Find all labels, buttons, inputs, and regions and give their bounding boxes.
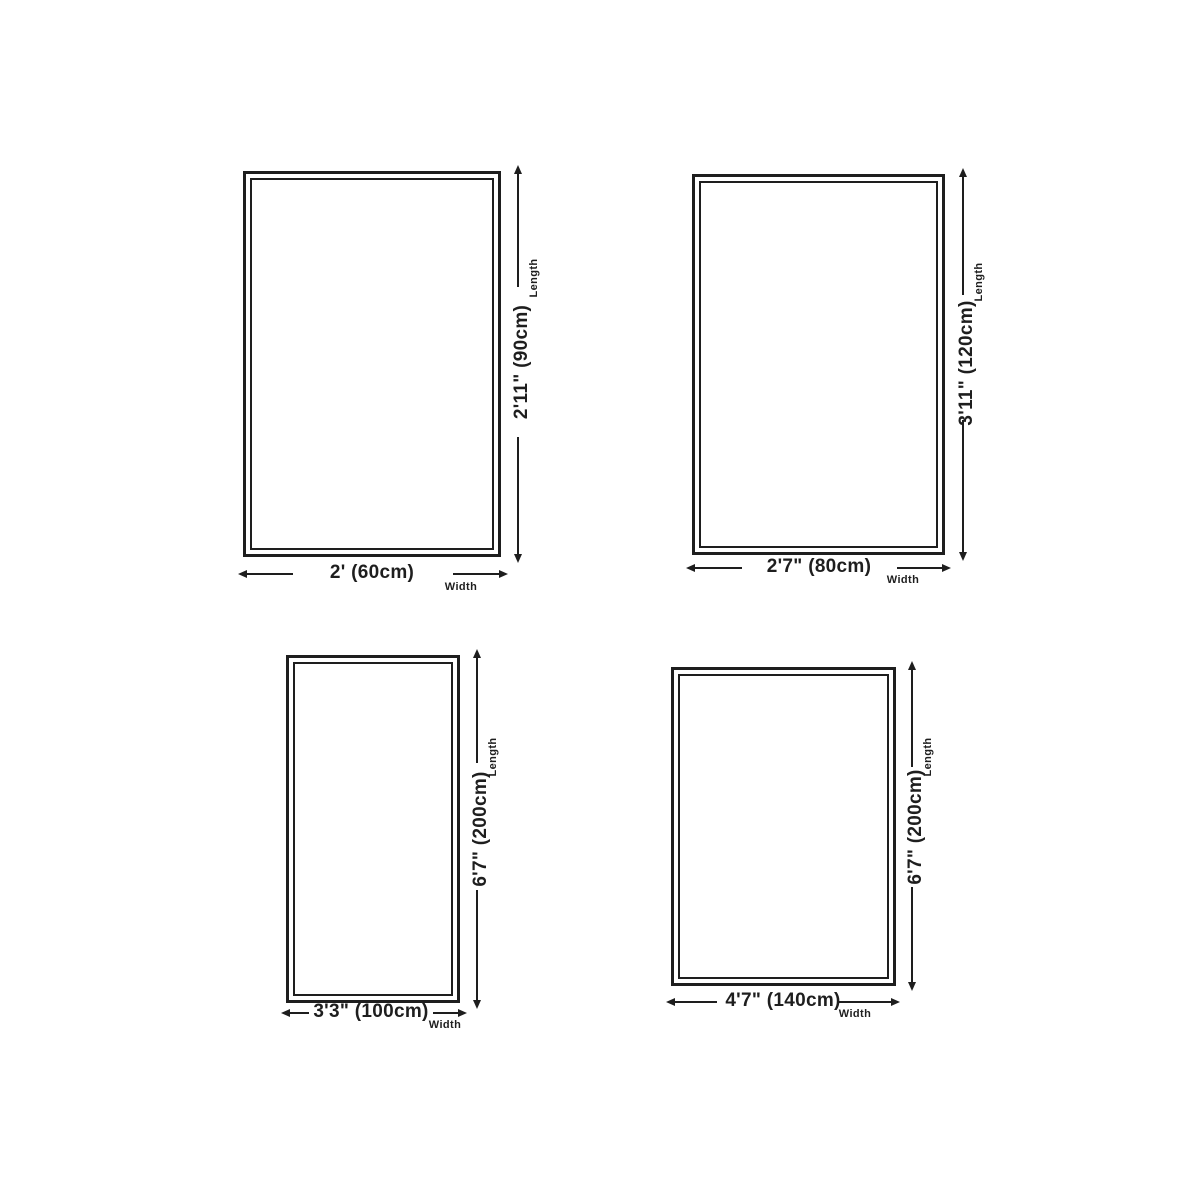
width-arrow-right-icon: [453, 573, 499, 575]
rug-outline: [692, 174, 945, 555]
rug-outline: [286, 655, 460, 1003]
length-value: 2'11" (90cm): [511, 305, 533, 419]
length-arrow-up-icon: [911, 670, 913, 767]
length-caption: Length: [973, 262, 985, 301]
width-arrow-left-icon: [290, 1012, 309, 1014]
width-caption: Width: [839, 1008, 871, 1020]
length-caption: Length: [528, 258, 540, 297]
width-value: 2' (60cm): [330, 562, 414, 584]
width-caption: Width: [887, 574, 919, 586]
width-value: 4'7" (140cm): [725, 990, 840, 1012]
width-value: 3'3" (100cm): [313, 1001, 428, 1023]
length-arrow-up-icon: [476, 658, 478, 763]
width-caption: Width: [445, 581, 477, 593]
length-value: 6'7" (200cm): [905, 769, 927, 884]
length-arrow-down-icon: [962, 420, 964, 552]
rug-size-chart: 2'11" (90cm) Length 2' (60cm) Width 3'11…: [0, 0, 1200, 1200]
rug-outline: [671, 667, 896, 986]
width-arrow-left-icon: [247, 573, 293, 575]
rug-inner-outline: [678, 674, 889, 979]
length-arrow-up-icon: [517, 174, 519, 287]
length-caption: Length: [922, 737, 934, 776]
length-value: 3'11" (120cm): [956, 300, 978, 425]
length-arrow-down-icon: [476, 890, 478, 1000]
width-arrow-right-icon: [433, 1012, 458, 1014]
width-arrow-right-icon: [897, 567, 942, 569]
width-value: 2'7" (80cm): [767, 556, 872, 578]
width-arrow-left-icon: [675, 1001, 717, 1003]
rug-outline: [243, 171, 501, 557]
rug-inner-outline: [250, 178, 494, 550]
width-caption: Width: [429, 1019, 461, 1031]
width-arrow-left-icon: [695, 567, 742, 569]
length-arrow-up-icon: [962, 177, 964, 295]
rug-inner-outline: [699, 181, 938, 548]
width-arrow-right-icon: [837, 1001, 891, 1003]
length-caption: Length: [487, 737, 499, 776]
rug-inner-outline: [293, 662, 453, 996]
length-arrow-down-icon: [517, 437, 519, 554]
length-arrow-down-icon: [911, 887, 913, 982]
length-value: 6'7" (200cm): [470, 771, 492, 886]
